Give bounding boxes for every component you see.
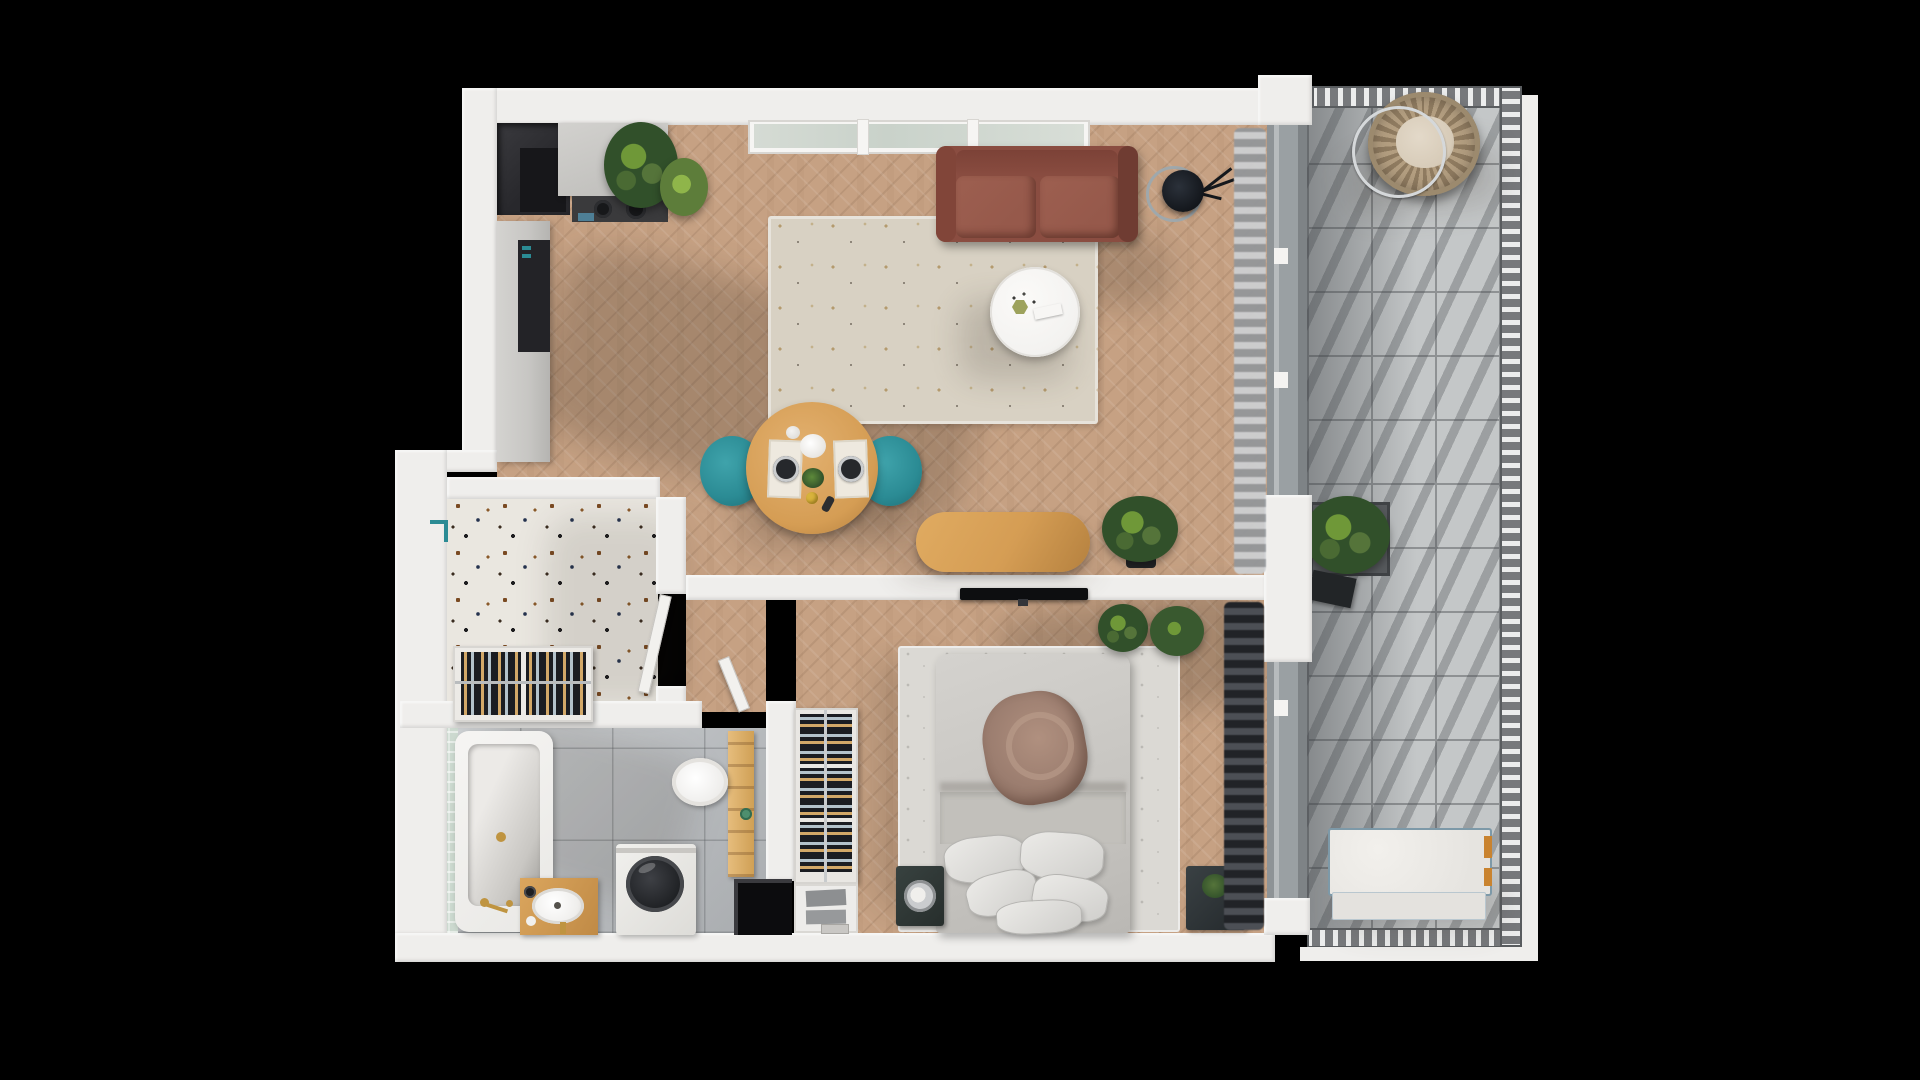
- kitchen-small-plant: [660, 158, 708, 216]
- balcony-outer-trim-right: [1522, 95, 1538, 955]
- wine-column-rail: [824, 710, 827, 882]
- balcony-planter-bush: [1304, 496, 1390, 574]
- wall-hall-right-upper: [656, 497, 686, 594]
- hanging-chair-hoop-icon: [1352, 106, 1446, 198]
- bathtub-handle-icon: [506, 900, 513, 907]
- sofa-arm-left: [936, 146, 956, 242]
- wall-bottom: [395, 933, 1275, 962]
- plate-right: [838, 456, 864, 482]
- hall-coat-hook-icon-2: [444, 520, 448, 542]
- sofa-seat-cushion-left: [956, 176, 1036, 238]
- console-oval-desk: [916, 512, 1090, 572]
- bench-leg-icon-2: [1484, 868, 1492, 886]
- sink-faucet-icon: [560, 922, 566, 934]
- floor-lamp-shade: [1162, 170, 1204, 212]
- balcony-railing-bottom: [1307, 928, 1502, 948]
- bench-seat-extension: [1332, 892, 1486, 920]
- glass-wall-handle-icon-3: [1274, 700, 1288, 716]
- bathtub-drain-icon: [496, 832, 506, 842]
- glass-wall-handle-icon-2: [1274, 372, 1288, 388]
- washing-machine-panel: [616, 848, 696, 853]
- toilet-flush-button-icon: [740, 808, 752, 820]
- cabinet-drawer-1: [806, 889, 847, 907]
- kitchen-towel: [578, 213, 594, 221]
- bathroom-dark-niche: [734, 879, 792, 935]
- balcony-corner-block: [1258, 75, 1312, 125]
- wall-hall-top: [447, 477, 660, 499]
- window-band-glass: [754, 124, 1084, 148]
- sink-drain-icon: [554, 902, 561, 909]
- bedroom-plant-2: [1150, 606, 1204, 656]
- bench-cushion: [1328, 828, 1492, 896]
- toilet-bowl: [672, 758, 728, 806]
- glass-wall-handle-icon-1: [1274, 248, 1288, 264]
- hall-rack-rail: [455, 681, 591, 684]
- balcony-railing-right: [1500, 86, 1522, 947]
- bench-leg-icon: [1484, 836, 1492, 858]
- pillar-between-windows: [1264, 495, 1312, 662]
- cabinet-tray: [822, 925, 848, 933]
- floor-plan-scene: [0, 0, 1920, 1080]
- plate-left: [773, 456, 799, 482]
- balcony-outer-trim-bottom: [1300, 947, 1538, 961]
- towel-ladder: [728, 731, 754, 877]
- wall-left-upper: [462, 88, 497, 462]
- table-bowl: [800, 434, 826, 458]
- kitchen-inset-teal-detail-2: [522, 254, 531, 258]
- window-mullion-1: [858, 120, 868, 154]
- bedroom-curtain: [1224, 602, 1264, 930]
- sofa-seat-cushion-right: [1040, 176, 1120, 238]
- tv-mount: [1018, 599, 1028, 606]
- console-plant: [1102, 496, 1178, 562]
- vanity-soap-dish: [526, 916, 536, 926]
- cabinet-drawer-2: [806, 910, 846, 925]
- table-centerpiece-plant: [802, 468, 824, 488]
- bedroom-plant-1: [1098, 604, 1148, 652]
- table-small-bowl: [786, 426, 800, 439]
- sofa-arm-right: [1118, 146, 1138, 242]
- vanity-knob-icon: [524, 886, 536, 898]
- glass-wall-bottom-block: [1264, 898, 1310, 935]
- table-lemon: [806, 492, 818, 504]
- cooktop-pan-icon-1: [594, 200, 612, 218]
- sofa-back-cushions: [956, 150, 1118, 178]
- living-room-curtain: [1234, 128, 1266, 574]
- wall-bedroom-left: [766, 701, 796, 881]
- kitchen-inset-teal-detail: [522, 246, 531, 250]
